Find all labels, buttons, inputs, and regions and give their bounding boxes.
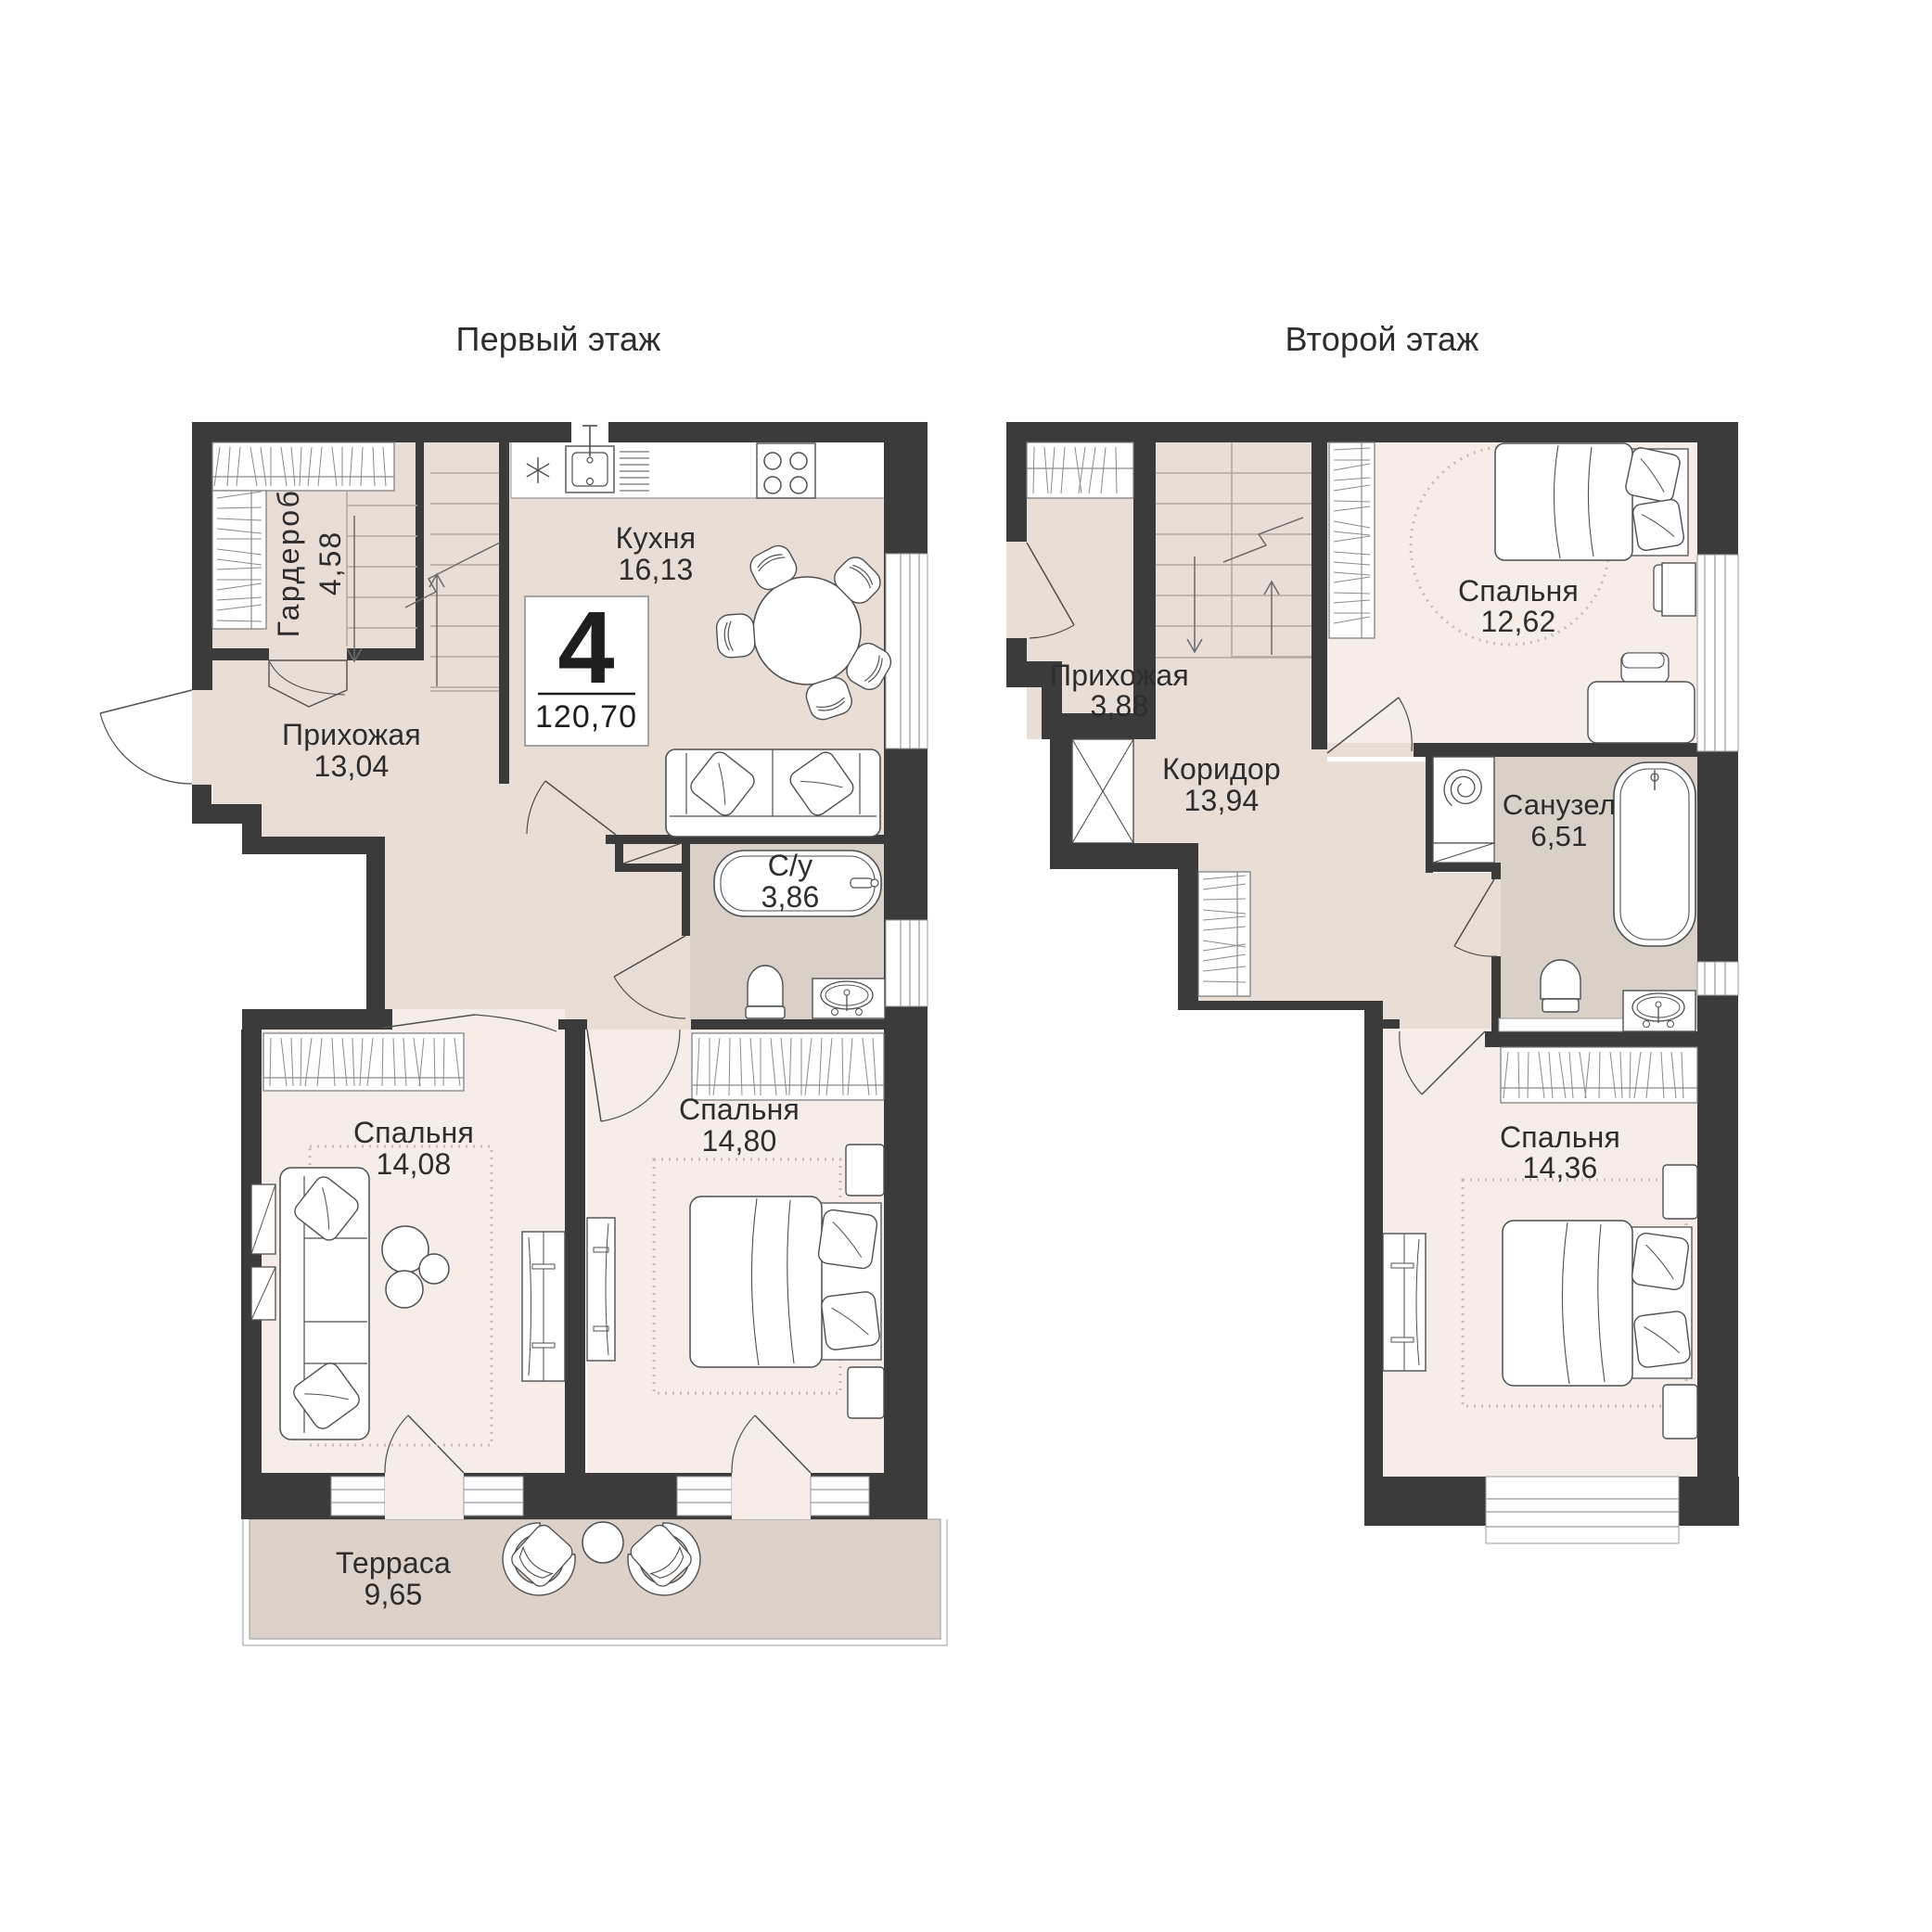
svg-text:Второй этаж: Второй этаж <box>1285 320 1478 358</box>
svg-text:Прихожая: Прихожая <box>282 718 421 751</box>
svg-text:Прихожая: Прихожая <box>1050 659 1189 692</box>
svg-text:Коридор: Коридор <box>1162 752 1281 786</box>
svg-text:Санузел: Санузел <box>1503 788 1616 821</box>
svg-text:13,94: 13,94 <box>1184 784 1259 817</box>
svg-text:3,86: 3,86 <box>761 880 819 914</box>
svg-text:14,80: 14,80 <box>701 1124 776 1158</box>
svg-text:Гардероб: Гардероб <box>272 489 305 638</box>
svg-text:12,62: 12,62 <box>1480 605 1555 638</box>
svg-text:120,70: 120,70 <box>535 699 637 735</box>
svg-text:16,13: 16,13 <box>618 553 693 586</box>
svg-text:Кухня: Кухня <box>616 521 697 555</box>
svg-text:4,58: 4,58 <box>313 531 347 595</box>
svg-text:Терраса: Терраса <box>336 1546 451 1580</box>
svg-text:Спальня: Спальня <box>1458 574 1579 608</box>
svg-text:14,08: 14,08 <box>376 1147 451 1181</box>
svg-text:9,65: 9,65 <box>364 1578 422 1611</box>
svg-text:13,04: 13,04 <box>313 749 389 783</box>
svg-text:4: 4 <box>557 591 614 705</box>
svg-text:6,51: 6,51 <box>1530 820 1587 852</box>
svg-text:Первый этаж: Первый этаж <box>456 320 661 358</box>
svg-text:Спальня: Спальня <box>679 1093 800 1126</box>
svg-text:С/у: С/у <box>768 849 813 882</box>
svg-text:Спальня: Спальня <box>1500 1120 1620 1154</box>
svg-text:Спальня: Спальня <box>353 1116 474 1149</box>
svg-text:14,36: 14,36 <box>1522 1151 1597 1184</box>
svg-text:3,88: 3,88 <box>1090 689 1148 723</box>
